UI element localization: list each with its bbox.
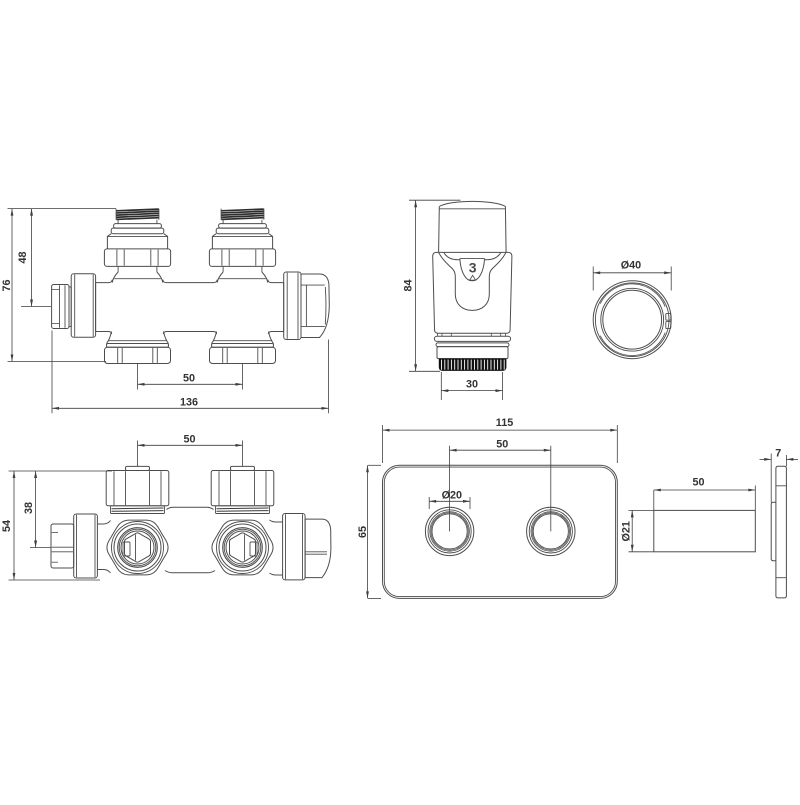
svg-text:136: 136 xyxy=(180,397,198,409)
svg-text:115: 115 xyxy=(496,417,513,429)
svg-text:7: 7 xyxy=(775,448,781,460)
svg-text:3: 3 xyxy=(469,260,477,276)
svg-text:65: 65 xyxy=(357,526,369,538)
svg-text:50: 50 xyxy=(692,476,704,488)
svg-text:76: 76 xyxy=(1,279,13,291)
svg-text:30: 30 xyxy=(466,379,478,391)
svg-text:50: 50 xyxy=(183,433,195,445)
svg-text:Ø40: Ø40 xyxy=(621,260,641,272)
svg-text:48: 48 xyxy=(17,251,29,263)
svg-text:84: 84 xyxy=(402,279,414,291)
svg-text:Ø20: Ø20 xyxy=(442,490,462,502)
svg-text:50: 50 xyxy=(496,439,508,451)
svg-text:54: 54 xyxy=(1,520,13,532)
svg-text:38: 38 xyxy=(23,502,35,514)
svg-text:50: 50 xyxy=(183,373,195,385)
svg-text:Ø21: Ø21 xyxy=(621,521,633,541)
